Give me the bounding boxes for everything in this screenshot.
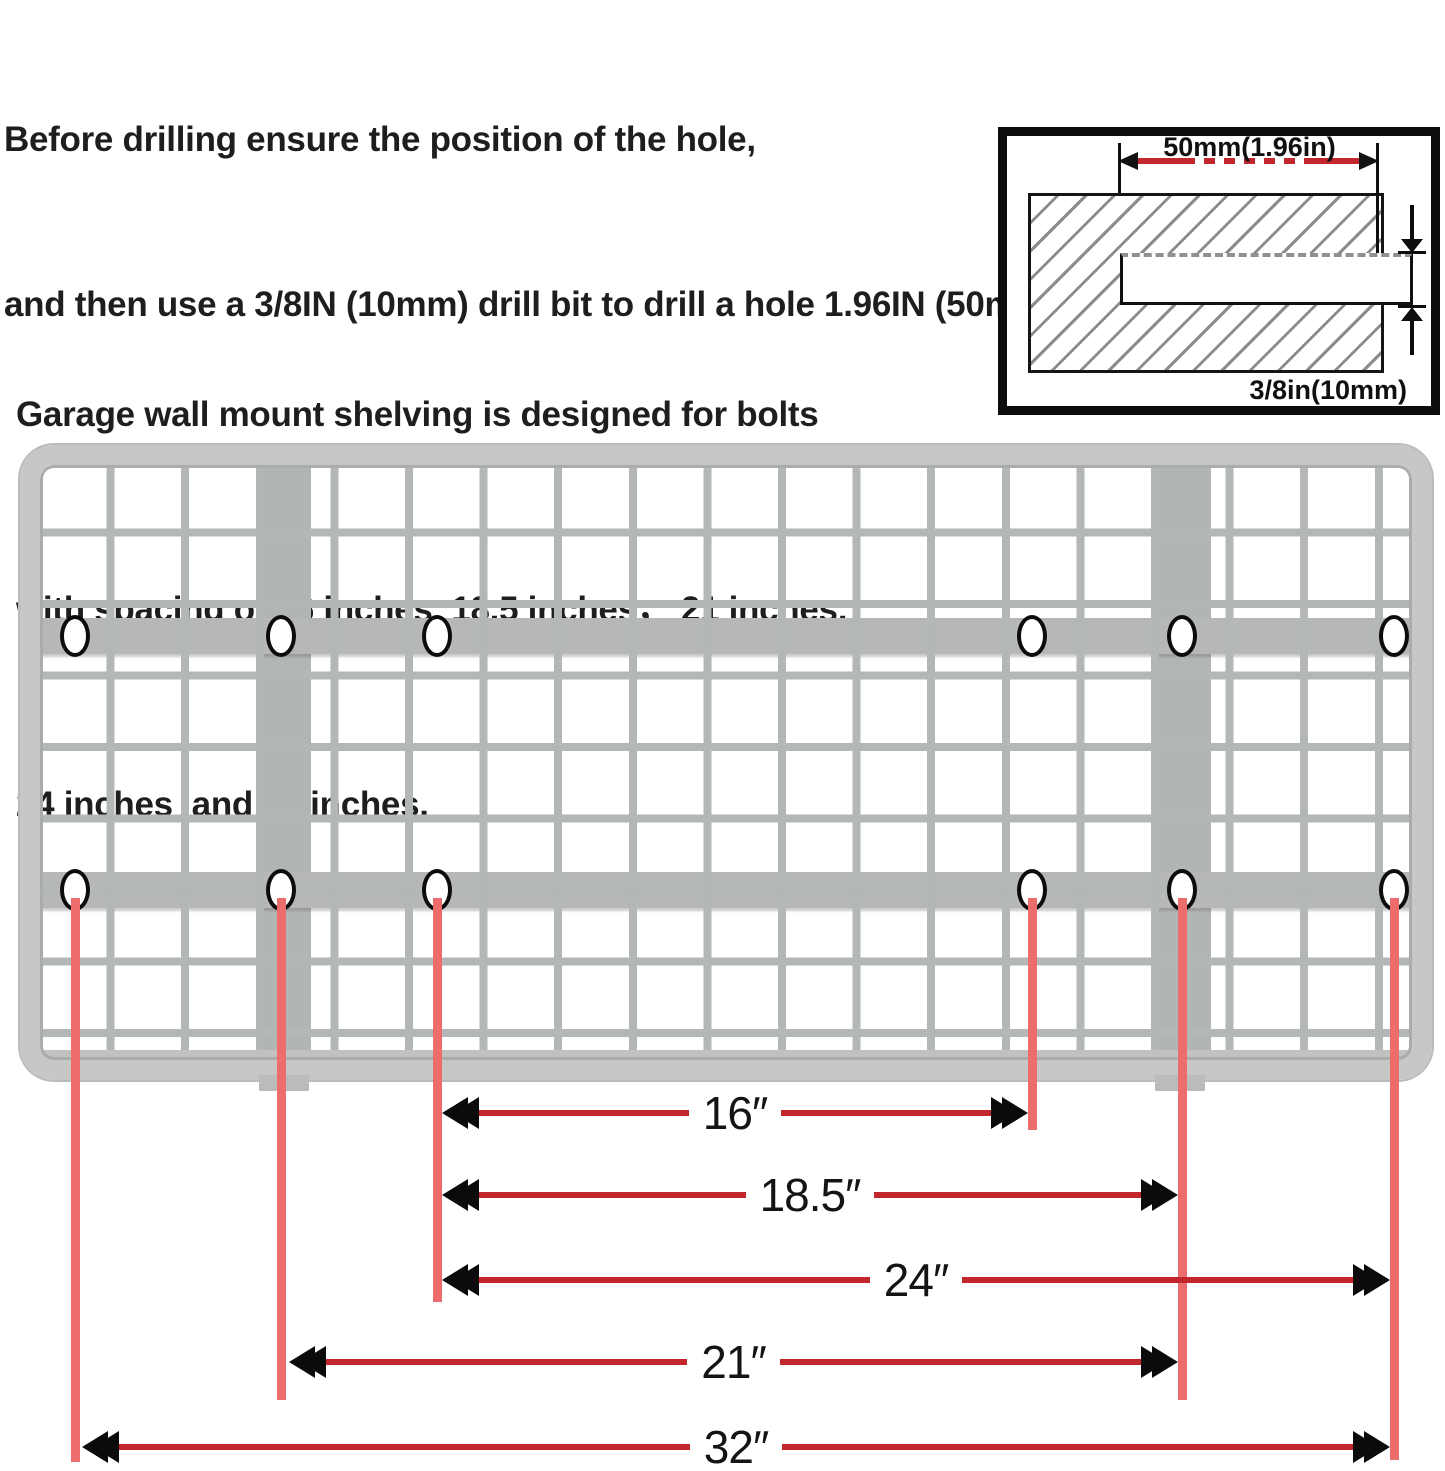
guide-line-5 bbox=[1178, 898, 1187, 1400]
guide-line-1 bbox=[71, 898, 80, 1462]
double-arrow-right-icon bbox=[991, 1097, 1028, 1129]
double-arrow-left-icon bbox=[442, 1179, 479, 1211]
guide-line-2 bbox=[277, 898, 286, 1400]
guide-line-4 bbox=[1028, 898, 1037, 1130]
bolt-hole bbox=[60, 615, 90, 657]
drill-hole bbox=[1120, 253, 1413, 305]
shelf-frame bbox=[20, 445, 1432, 1080]
diameter-arrow-bottom bbox=[1401, 307, 1423, 355]
bolt-hole bbox=[1017, 615, 1047, 657]
bolt-hole bbox=[1379, 615, 1409, 657]
measurement-row-32in: 32″ bbox=[82, 1425, 1390, 1469]
measurement-label: 16″ bbox=[689, 1091, 781, 1135]
double-arrow-right-icon bbox=[1141, 1346, 1178, 1378]
bolt-hole bbox=[266, 615, 296, 657]
double-arrow-right-icon bbox=[1141, 1179, 1178, 1211]
measurement-row-21in: 21″ bbox=[289, 1340, 1178, 1384]
guide-line-3 bbox=[433, 898, 442, 1302]
double-arrow-left-icon bbox=[82, 1431, 119, 1463]
measurement-label: 24″ bbox=[870, 1258, 962, 1302]
header-line-1: Before drilling ensure the position of t… bbox=[4, 112, 1157, 167]
paragraph-line-1: Garage wall mount shelving is designed f… bbox=[16, 382, 847, 447]
bolt-hole bbox=[422, 615, 452, 657]
double-arrow-left-icon bbox=[442, 1097, 479, 1129]
bolt-hole bbox=[1167, 615, 1197, 657]
diameter-label: 3/8in(10mm) bbox=[1249, 375, 1407, 406]
double-arrow-right-icon bbox=[1353, 1264, 1390, 1296]
measurement-label: 18.5″ bbox=[746, 1173, 875, 1217]
wire-shelf bbox=[20, 445, 1432, 1080]
drill-hole-cross-section-diagram: 50mm(1.96in) 3/8in(10mm) bbox=[998, 127, 1440, 415]
depth-label: 50mm(1.96in) bbox=[1117, 132, 1382, 163]
double-arrow-right-icon bbox=[1353, 1431, 1390, 1463]
measurement-label: 32″ bbox=[690, 1425, 782, 1469]
measurement-label: 21″ bbox=[687, 1340, 779, 1384]
guide-line-6 bbox=[1390, 898, 1399, 1460]
measurement-row-18-5in: 18.5″ bbox=[442, 1173, 1178, 1217]
diameter-tick-bottom bbox=[1398, 305, 1426, 308]
diameter-arrow-top bbox=[1401, 205, 1423, 253]
diameter-tick-top bbox=[1398, 251, 1426, 254]
measurement-row-16in: 16″ bbox=[442, 1091, 1028, 1135]
double-arrow-left-icon bbox=[289, 1346, 326, 1378]
double-arrow-left-icon bbox=[442, 1264, 479, 1296]
measurement-row-24in: 24″ bbox=[442, 1258, 1390, 1302]
instruction-sheet: Before drilling ensure the position of t… bbox=[0, 0, 1445, 1471]
